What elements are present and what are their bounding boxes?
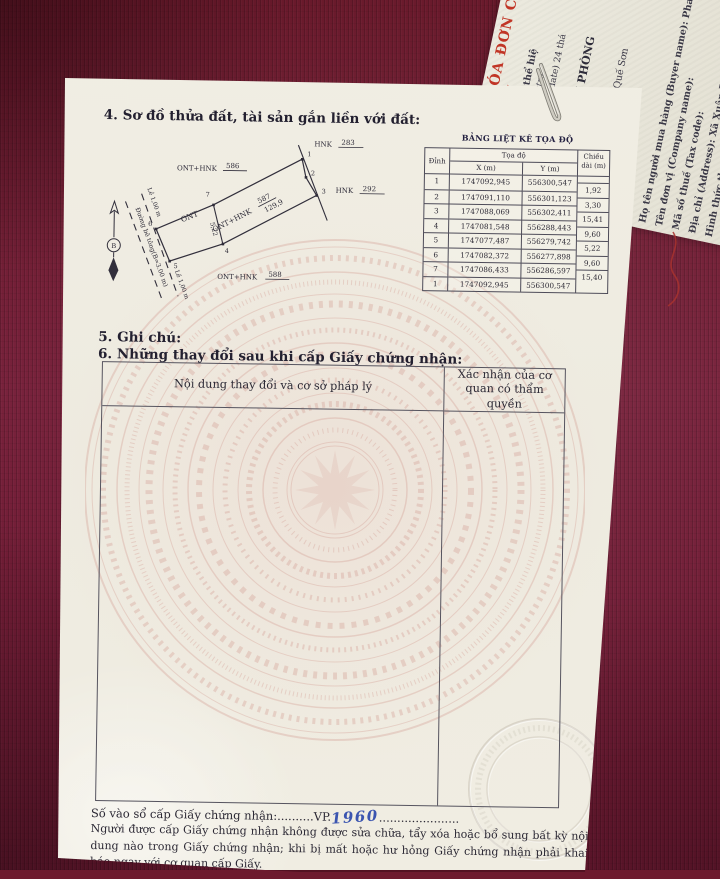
y-cell: 556301,123 <box>522 190 576 205</box>
vertex-cell: 5 <box>424 232 448 247</box>
book-entry-prefix: VP. <box>314 809 332 823</box>
parcel-use: ONT+HNK <box>217 273 258 282</box>
y-cell: 556286,597 <box>521 263 575 278</box>
vertex-cell: 3 <box>424 203 448 218</box>
changes-table: Nội dung thay đổi và cơ sở pháp lý Xác n… <box>95 361 566 808</box>
x-cell: 1747082,372 <box>449 247 522 263</box>
coordinate-table-title: BẢNG LIỆT KÊ TỌA ĐỘ <box>424 132 610 145</box>
length-cell: 1,92 <box>578 184 609 199</box>
x-cell: 1747081,548 <box>449 218 522 234</box>
x-cell: 1747092,945 <box>448 276 521 292</box>
adjacent-parcel-586: ONT+HNK 586 <box>177 161 247 173</box>
x-cell: 1747092,945 <box>450 175 523 191</box>
left-parcel-label: ONT <box>180 209 200 224</box>
parcel-number: 283 <box>341 139 354 147</box>
vertex-label: 6 <box>148 220 152 228</box>
north-label: B <box>111 242 116 250</box>
vertex-cell: 7 <box>423 261 447 276</box>
parcel-use: ONT+HNK <box>177 164 218 173</box>
vertex-cell: 1 <box>425 174 449 189</box>
section4-title: 4. Sơ đồ thửa đất, tài sản gắn liền với … <box>104 107 524 130</box>
paperclip <box>528 62 578 124</box>
parcel-number: 586 <box>226 162 240 170</box>
vertex-label: 3 <box>322 187 326 195</box>
road-margin-label: Lề 1,00 m <box>145 186 163 218</box>
parcel-number: 292 <box>363 185 376 193</box>
x-cell: 1747086,433 <box>448 261 521 277</box>
col-header-length: Chiều dài (m) <box>578 151 609 177</box>
vertex-cell: 1 <box>423 276 447 291</box>
changes-col2-header: Xác nhận của cơ quan có thẩm quyền <box>444 367 565 413</box>
north-arrow-icon: B <box>107 201 121 281</box>
col-header-x: X (m) <box>450 162 523 175</box>
y-cell: 556300,547 <box>523 176 577 191</box>
vertex-label: 4 <box>225 247 229 255</box>
dotted-leader: ...................... <box>379 810 460 825</box>
vertex-cell: 2 <box>424 189 448 204</box>
col-header-y: Y (m) <box>523 163 577 176</box>
y-cell: 556279,742 <box>522 234 576 249</box>
y-cell: 556288,443 <box>522 219 576 234</box>
dotted-leader: .......... <box>277 809 314 824</box>
parcel-use: HNK <box>314 140 332 148</box>
vertex-label: 5 <box>173 262 177 270</box>
adjacent-parcel-283: HNK 283 <box>314 138 363 149</box>
y-cell: 556300,547 <box>521 277 575 292</box>
adjacent-parcel-292: HNK 292 <box>336 185 385 196</box>
vertex-cell: 4 <box>424 218 448 233</box>
parcel-diagram: 1 2 3 4 5 6 7 HNK 283 ONT+HNK 586 <box>96 129 439 339</box>
length-cell: 9,60 <box>576 256 607 271</box>
vertex-label: 7 <box>206 191 210 199</box>
y-cell: 556302,411 <box>522 205 576 220</box>
x-cell: 1747077,487 <box>449 232 522 248</box>
x-cell: 1747091,110 <box>449 189 522 205</box>
length-cell: 15,41 <box>577 213 608 228</box>
vertex-cell: 6 <box>424 247 448 262</box>
length-cell: 3,30 <box>577 198 608 213</box>
vertex-label: 1 <box>307 150 311 158</box>
parcel-use: HNK <box>336 187 354 195</box>
length-cell: 15,40 <box>576 271 607 293</box>
section5-title: 5. Ghi chú: <box>98 329 181 346</box>
y-cell: 556277,898 <box>522 248 576 263</box>
red-thread <box>655 230 715 310</box>
vertex-label: 2 <box>311 169 315 177</box>
parcel-number: 588 <box>268 271 281 279</box>
coordinate-table: BẢNG LIỆT KÊ TỌA ĐỘ Đỉnh 1 2 3 4 5 6 7 1… <box>422 132 610 294</box>
adjacent-parcel-588: ONT+HNK 588 <box>217 270 289 282</box>
road-margin-label: Lề 1,00 m <box>173 269 191 301</box>
changes-col1-header: Nội dung thay đổi và cơ sở pháp lý <box>102 362 444 411</box>
length-cell: 5,22 <box>577 242 608 257</box>
book-entry-label: Số vào sổ cấp Giấy chứng nhận: <box>91 806 277 823</box>
length-cell: 9,60 <box>577 227 608 242</box>
col-header-vertex: Đỉnh <box>425 148 449 174</box>
x-cell: 1747088,069 <box>449 204 522 220</box>
